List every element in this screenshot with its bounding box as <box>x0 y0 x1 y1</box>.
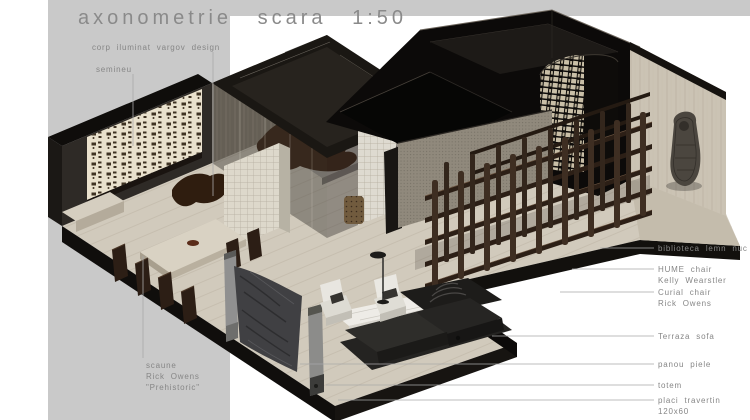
page-title: axonometrie scara 1:50 <box>78 7 407 29</box>
svg-text:Kelly Wearstler: Kelly Wearstler <box>658 276 727 285</box>
svg-text:panou piele: panou piele <box>658 360 711 369</box>
svg-text:120x60: 120x60 <box>658 407 689 416</box>
svg-text:totem: totem <box>658 381 682 390</box>
label-corp-iluminat: corp iluminat vargov design <box>92 43 220 52</box>
totem-column <box>224 250 238 342</box>
svg-text:Terraza sofa: Terraza sofa <box>658 332 715 341</box>
svg-text:HUME chair: HUME chair <box>658 265 712 274</box>
svg-text:"Prehistoric": "Prehistoric" <box>146 383 200 392</box>
label-semineu: semineu <box>96 65 132 74</box>
svg-text:biblioteca lemn nuc: biblioteca lemn nuc <box>658 244 748 253</box>
rustic-stool <box>344 196 364 224</box>
totem-column <box>308 304 324 396</box>
axonometric-drawing-sheet: axonometrie scara 1:50 corp iluminat var… <box>0 0 750 420</box>
axonometric-render: axonometrie scara 1:50 corp iluminat var… <box>0 0 750 420</box>
svg-text:Rick Owens: Rick Owens <box>146 372 200 381</box>
svg-text:Curial chair: Curial chair <box>658 288 711 297</box>
svg-text:Rick Owens: Rick Owens <box>658 299 712 308</box>
svg-text:placi travertin: placi travertin <box>658 396 721 405</box>
table-bowl <box>187 240 199 246</box>
svg-text:scaune: scaune <box>146 361 177 370</box>
